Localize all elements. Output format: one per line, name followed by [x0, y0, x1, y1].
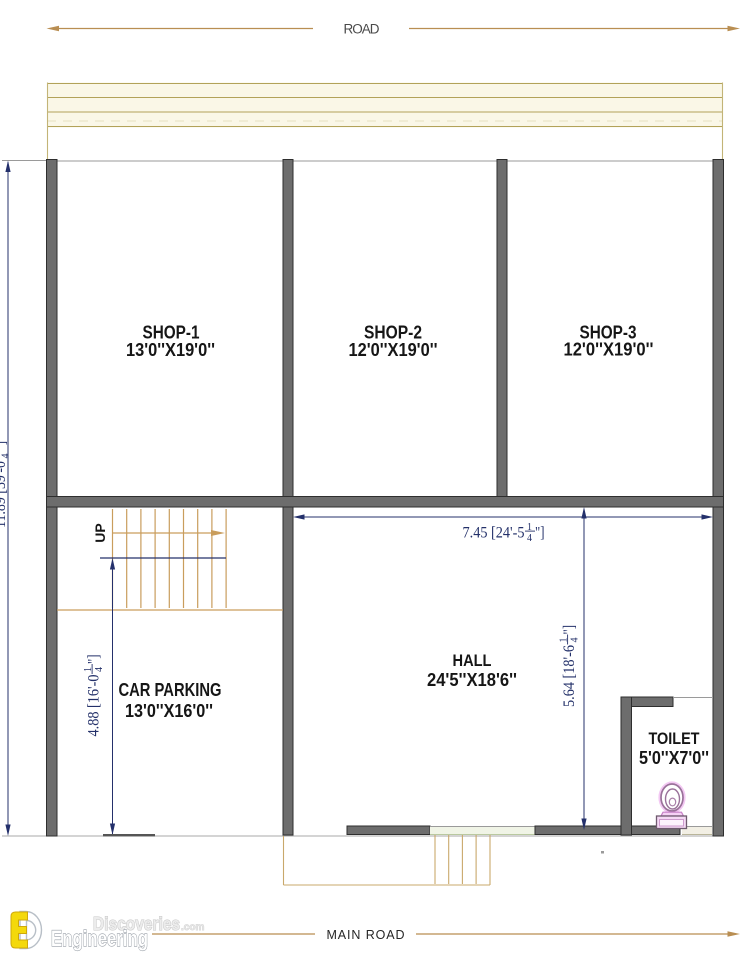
svg-text:5.64 [18'-6: 5.64 [18'-6 — [561, 645, 578, 707]
svg-text:"]: "] — [561, 625, 578, 635]
svg-text:7.45 [24'-5: 7.45 [24'-5 — [463, 525, 525, 542]
svg-text:12'0''X19'0'': 12'0''X19'0'' — [349, 340, 438, 360]
svg-text:HALL: HALL — [453, 651, 492, 670]
svg-text:4: 4 — [1, 454, 12, 459]
svg-text:4: 4 — [94, 667, 105, 672]
svg-text:CAR PARKING: CAR PARKING — [119, 680, 222, 700]
svg-text:"]: "] — [535, 525, 545, 542]
svg-text:.com: .com — [181, 922, 204, 933]
svg-text:UP: UP — [92, 523, 108, 542]
svg-text:4: 4 — [527, 533, 532, 544]
svg-text:13'0''X16'0'': 13'0''X16'0'' — [125, 701, 213, 721]
svg-text:11.89 [39'-0: 11.89 [39'-0 — [0, 461, 9, 528]
svg-text:ROAD: ROAD — [344, 22, 380, 37]
svg-text:Engineering: Engineering — [51, 926, 148, 951]
svg-text:13'0''X19'0'': 13'0''X19'0'' — [126, 340, 215, 360]
svg-text:24'5''X18'6'': 24'5''X18'6'' — [427, 669, 517, 690]
svg-text:12'0''X19'0'': 12'0''X19'0'' — [564, 340, 654, 360]
svg-text:4: 4 — [570, 638, 581, 643]
svg-text:5'0''X7'0'': 5'0''X7'0'' — [639, 748, 709, 768]
svg-text:"]: "] — [0, 441, 9, 451]
svg-text:"]: "] — [86, 655, 103, 665]
svg-text:MAIN ROAD: MAIN ROAD — [327, 928, 405, 942]
svg-text:4.88 [16'-0: 4.88 [16'-0 — [86, 675, 103, 737]
svg-text:TOILET: TOILET — [649, 729, 701, 748]
